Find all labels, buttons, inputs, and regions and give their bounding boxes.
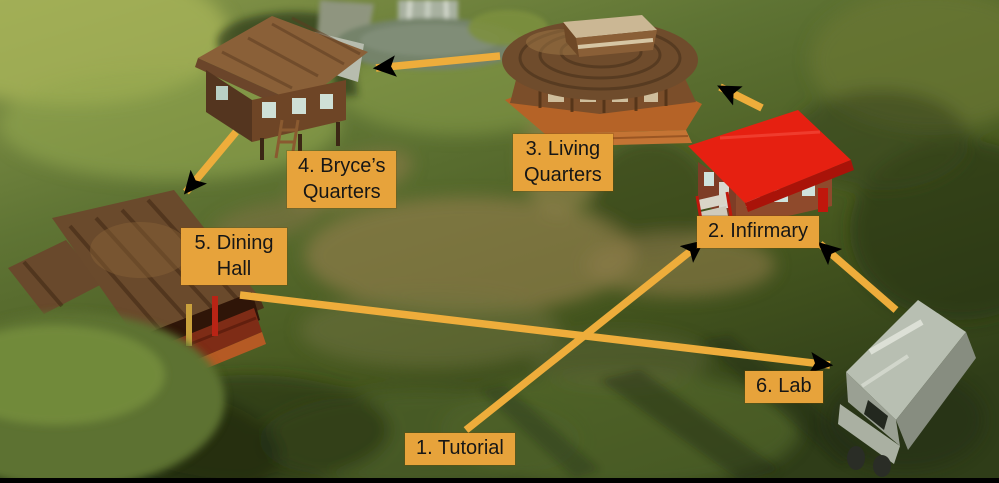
post [186, 304, 192, 346]
game-viewport[interactable] [0, 0, 999, 483]
wheel [847, 446, 865, 470]
label-living-quarters: 3. Living Quarters [513, 134, 613, 191]
label-tutorial: 1. Tutorial [405, 433, 515, 465]
post [212, 296, 218, 336]
letterbox-bar [0, 478, 999, 483]
label-infirmary: 2. Infirmary [697, 216, 819, 248]
label-lab: 6. Lab [745, 371, 823, 403]
label-dining-hall: 5. Dining Hall [181, 228, 287, 285]
chimney-pipe [818, 188, 828, 212]
wheel [873, 455, 891, 477]
label-bryces-quarters: 4. Bryce’s Quarters [287, 151, 396, 208]
